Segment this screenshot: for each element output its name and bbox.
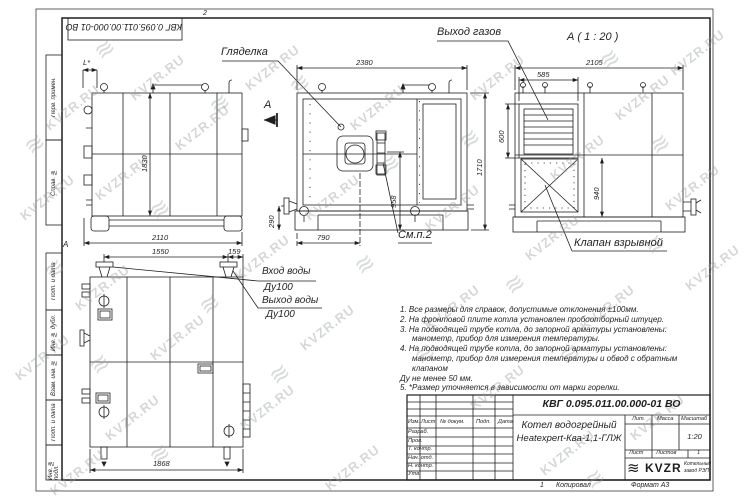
title-sheets-value: 1: [697, 451, 700, 457]
dim-side-height: 1830: [141, 155, 149, 172]
margin-label-sprav-no: Справ. №: [46, 140, 62, 225]
drawing-sheet: KVZR.RU KVZR.RU KVZR.RU KVZR.RU KVZR.RU …: [0, 0, 750, 500]
footer-copied-label: Копировал: [556, 482, 591, 489]
label-explosion-valve: Клапан взрывной: [574, 238, 663, 249]
dim-section-width: 2105: [586, 59, 603, 67]
drawing-linework: [0, 0, 750, 500]
dim-front-height: 1710: [476, 159, 484, 176]
dim-burner-height: 958: [390, 195, 398, 208]
footer-format-label: Формат А3: [631, 482, 669, 489]
company-name-line2: завод РЭП: [684, 469, 709, 474]
margin-label-podp-data-1: Подп. и дата: [46, 253, 62, 310]
label-water-outlet-dn: Ду100: [266, 310, 295, 320]
title-col-sign: Подп.: [476, 420, 491, 426]
note-line: манометр, прибор для измерения температу…: [400, 354, 702, 374]
dim-louver-width: 585: [537, 71, 550, 79]
title-row-tkontr: Т. контр.: [408, 447, 432, 453]
note-line: 2. На фронтовой плите котла установлен п…: [400, 315, 702, 325]
dim-burner-offset: 790: [317, 234, 330, 242]
label-section-arrow: А: [264, 100, 271, 111]
title-row-razrab: Разраб.: [408, 430, 428, 436]
sheet-frame: [36, 9, 713, 491]
margin-label-podp-data-2: Подп. и дата: [46, 400, 62, 445]
dim-side-width: 2110: [152, 234, 168, 242]
label-water-outlet: Выход воды: [262, 296, 318, 306]
company-logo-text: KVZR: [645, 462, 682, 474]
company-logo-icon: ≋: [627, 461, 640, 476]
note-line: 5. *Размер уточняется в зависимости от м…: [400, 383, 702, 393]
title-row-nachotd: Нач. отд.: [408, 456, 433, 462]
title-row-nkontr: Н. контр.: [408, 464, 433, 470]
label-water-inlet-dn: Ду100: [264, 283, 293, 293]
margin-label-vzam-inv: Взам. инв. №: [46, 355, 62, 400]
dim-rear-pipes-span: 1550: [152, 248, 169, 256]
label-see-note: См.п.2: [398, 230, 432, 241]
dim-front-width: 2380: [356, 59, 373, 67]
notes-block: 1. Все размеры для справок, допустимые о…: [400, 305, 702, 393]
note-line: 4. На подводящей трубе котла, до запорно…: [400, 344, 702, 354]
note-line: 1. Все размеры для справок, допустимые о…: [400, 305, 702, 315]
view-section-a: [505, 65, 701, 251]
label-sight-glass: Гляделка: [221, 47, 268, 58]
title-row-utv: Утв.: [408, 472, 421, 478]
zone-mark-bottom: 1: [540, 482, 544, 489]
dim-rear-width: 1868: [153, 460, 170, 468]
margin-label-inv-dubl: Инв. № дубл.: [46, 310, 62, 355]
dim-stub-height: 290: [268, 215, 276, 228]
title-lit-header: Лит.: [632, 417, 645, 423]
label-gas-outlet: Выход газов: [437, 27, 501, 38]
dim-rear-pipe-edge: 159: [228, 248, 241, 256]
stamp-doc-number: КВГ 0.095.011.00.000-01 ВО: [68, 22, 182, 31]
title-row-prov: Пров.: [408, 439, 423, 445]
margin-label-inv-podl: Инв. № подл.: [46, 445, 62, 480]
margin-label-perv-primen: Перв. примен.: [46, 55, 62, 140]
title-doc-number: КВГ 0.095.011.00.000-01 ВО: [513, 399, 710, 410]
dim-side-top: L*: [83, 59, 90, 67]
note-line: манометр, прибор для измерения температу…: [400, 334, 702, 344]
note-line: 3. На подводящей трубе котла, до запорно…: [400, 325, 702, 335]
dim-valve-height: 940: [593, 187, 601, 200]
dim-louver-height: 600: [498, 130, 506, 143]
title-product-name-1: Котел водогрейный: [513, 421, 625, 431]
title-col-izm: Изм.: [408, 420, 420, 426]
view-side: [83, 70, 248, 246]
title-sheet-label: Лист: [629, 451, 643, 457]
title-scale-value: 1:20: [679, 433, 710, 441]
title-col-date: Дата: [498, 420, 513, 426]
title-sheets-label: Листов: [656, 451, 676, 457]
label-water-inlet: Вход воды: [262, 267, 311, 277]
title-scale-header: Масштаб: [681, 417, 707, 423]
title-col-doc: № докум.: [440, 420, 465, 426]
title-product-name-2: Heatexpert-Ква-1,1-ГЛЖ: [513, 434, 625, 444]
note-line: Ду не менее 50 мм.: [400, 374, 702, 384]
title-mass-header: Масса: [657, 417, 674, 423]
label-section-view-title: А ( 1 : 20 ): [567, 32, 618, 43]
zone-mark-left: А: [63, 241, 68, 249]
company-name-line1: Котельный: [684, 462, 711, 467]
zone-mark-top: 2: [203, 10, 207, 17]
title-col-list: Лист: [421, 420, 435, 426]
